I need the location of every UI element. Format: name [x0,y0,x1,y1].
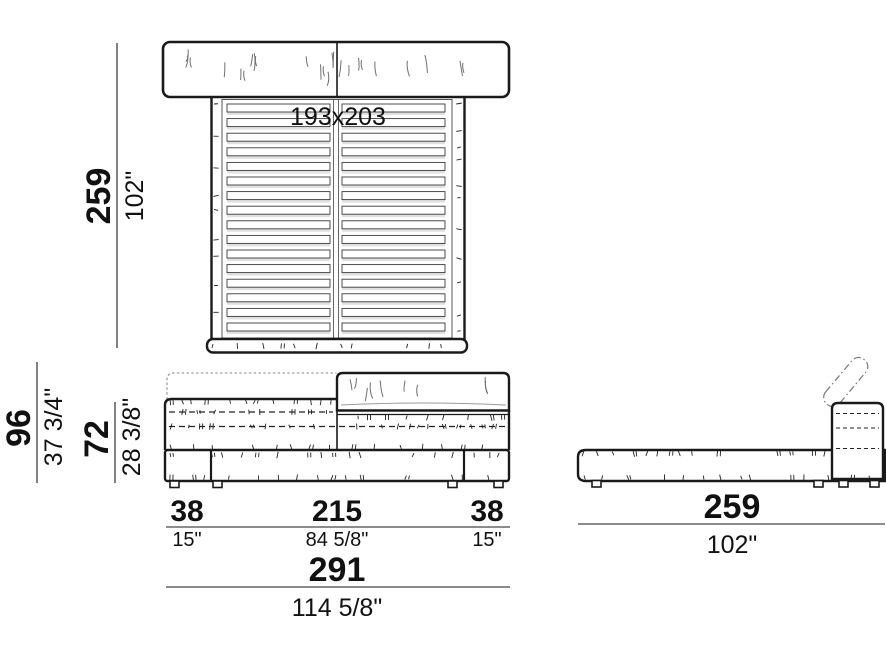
tick-mark [246,400,247,404]
tick-mark [457,147,461,148]
top-view-foot-bar [207,339,467,353]
technical-drawing-canvas: 193x203 259 102" [0,0,886,664]
tick-mark [193,444,194,450]
dim-left-inch: 15" [172,529,201,551]
dimension-inch: 102" [121,171,149,222]
slat [227,265,330,273]
tick-mark [490,414,492,420]
slat [227,177,330,185]
dim-height-total-inch: 37 3/4" [40,388,68,466]
tick-mark [185,409,186,415]
slat [342,177,445,185]
slat [227,221,330,229]
slat-shadow [342,331,445,334]
tick-mark [355,444,356,449]
slat [342,192,445,200]
tick-mark [253,400,255,404]
tilted-headrest-rect [820,354,871,410]
tick-mark [382,425,383,429]
tick-mark [443,415,444,420]
dim-depth-inch: 102" [707,531,758,559]
wrinkle-mark [321,64,322,79]
tick-mark [214,209,218,210]
tick-mark [363,475,364,480]
foot [592,481,601,488]
tick-mark [182,400,184,405]
front-width-dimensions: 38 215 38 15" 84 5/8" 15" 291 114 5/8" [166,495,510,622]
dim-depth-cm: 259 [704,488,761,526]
slat-shadow [227,331,330,334]
slat [227,206,330,214]
tick-mark [441,344,442,348]
dim-left-cm: 38 [170,495,203,528]
tick-mark [493,414,494,420]
slat [227,323,330,331]
tick-mark [252,445,254,449]
slat-shadow [227,287,330,290]
dim-center-inch: 84 5/8" [306,529,369,551]
tick-mark [457,282,461,283]
slat [342,323,445,331]
slat [342,221,445,229]
tick-mark [253,425,254,428]
foot [814,481,823,488]
top-view-headboard [163,42,509,97]
slat-shadow [342,258,445,261]
tick-mark [456,186,461,187]
front-height-dimensions: 96 37 3/4" 72 28 3/8" [0,362,146,483]
dim-center-cm: 215 [312,495,362,528]
tick-mark [456,103,461,104]
slat [227,279,330,287]
raised-headrest [337,373,509,411]
tick-mark [230,400,231,404]
dim-right-inch: 15" [472,529,501,551]
tick-mark [273,400,274,404]
tick-mark [313,445,314,450]
tick-mark [276,445,277,449]
dim-height-base-inch: 28 3/8" [118,398,146,476]
tick-mark [482,424,483,428]
mattress-left-outline [165,399,337,450]
tick-mark [313,424,314,429]
slat [227,235,330,243]
slat [342,250,445,258]
slat-shadow [342,273,445,276]
side-depth-dimension: 259 102" [578,488,885,559]
slat-shadow [342,302,445,305]
tick-mark [482,445,483,450]
tick-mark [400,445,401,449]
dim-total-cm: 291 [309,551,366,589]
tick-mark [205,399,206,405]
tick-mark [445,424,446,429]
slat [227,308,330,316]
slat [227,133,330,141]
folded-headrest-outline [167,373,336,399]
slat [342,206,445,214]
slat [342,148,445,156]
slat [227,294,330,302]
dim-total-inch: 114 5/8" [292,594,382,622]
tick-mark [191,400,192,404]
tick-mark [397,423,398,429]
base-platform [165,450,509,481]
slat-base [227,104,445,334]
bed-dimension-drawing: 193x203 259 102" [0,0,886,664]
tick-mark [456,131,461,132]
dim-height-base-cm: 72 [78,420,116,458]
tick-mark [214,453,215,457]
tick-mark [188,425,189,429]
slat [227,250,330,258]
tick-mark [213,195,218,196]
foot [448,481,457,488]
slat [227,162,330,170]
tick-mark [692,451,693,455]
tick-mark [457,425,458,429]
tick-mark [265,424,266,430]
slat [342,133,445,141]
tick-mark [457,258,462,259]
tick-mark [461,445,462,450]
slat [342,265,445,273]
tick-mark [170,399,171,405]
tick-mark [197,410,198,414]
tick-mark [496,424,497,429]
foot [170,481,179,488]
tick-mark [417,425,419,429]
slat-shadow [227,302,330,305]
slat [227,192,330,200]
side-view: 259 102" [578,354,885,559]
tick-mark [409,424,410,430]
tilted-headrest-outline [820,354,871,410]
wrinkle-mark [359,58,360,71]
slat-shadow [227,258,330,261]
tick-mark [457,159,462,160]
foot [494,481,503,488]
tick-mark [429,343,430,349]
tick-mark [426,415,428,421]
tick-mark [257,400,258,403]
slat [342,279,445,287]
side-headboard [832,403,883,479]
slat-shadow [342,287,445,290]
tick-mark [210,423,211,429]
slat [342,235,445,243]
foot [870,481,879,488]
slat [342,294,445,302]
slat-shadow [342,316,445,319]
slat [227,148,330,156]
tick-mark [717,450,718,456]
foot [213,481,222,488]
front-view: 38 215 38 15" 84 5/8" 15" 291 114 5/8" 9… [0,362,510,622]
tick-mark [485,424,486,428]
tick-mark [456,229,461,230]
top-view: 193x203 259 102" [80,42,509,353]
slat [342,162,445,170]
dimension-cm: 259 [80,168,118,225]
tick-mark [406,416,407,420]
slat-shadow [227,273,330,276]
tick-mark [468,415,469,420]
tick-mark [309,445,311,450]
foot [839,481,848,488]
mattress-size-label: 193x203 [290,103,386,131]
tick-mark [213,240,218,241]
dim-height-total-cm: 96 [0,409,38,447]
top-view-length-dimension: 259 102" [80,43,149,348]
tick-mark [780,451,781,456]
tick-mark [457,315,461,316]
slat [342,308,445,316]
slat-shadow [227,316,330,319]
tick-mark [170,445,171,450]
tick-mark [460,425,461,429]
dim-right-cm: 38 [470,495,503,528]
